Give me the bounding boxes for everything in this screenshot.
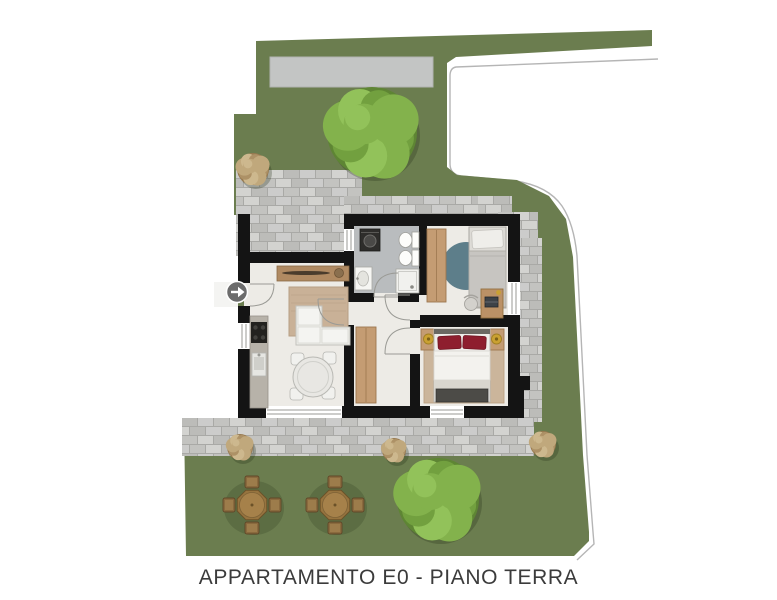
paving-tile <box>494 445 509 453</box>
paving-tile <box>214 454 229 456</box>
bedroom-2 <box>421 329 504 403</box>
paving-tile <box>294 454 309 456</box>
paving-tile <box>530 212 538 220</box>
wall-segment <box>464 406 520 418</box>
paving-tile <box>252 206 267 214</box>
paving-tile <box>538 292 542 300</box>
cooktop <box>251 322 267 343</box>
paving-tile <box>530 373 542 381</box>
wall-segment <box>344 222 354 229</box>
paving-tile <box>502 436 517 444</box>
paving-tile <box>478 445 493 453</box>
paving-tile <box>440 196 455 204</box>
paving-tile <box>326 418 341 426</box>
paving-tile <box>286 445 301 453</box>
patio-chair-seat <box>330 478 340 486</box>
paving-tile <box>316 188 331 196</box>
paving-tile <box>236 188 251 196</box>
paving-tile <box>318 445 333 453</box>
paving-tile <box>326 454 341 456</box>
paving-tile <box>262 418 277 426</box>
paving-tile <box>374 418 389 426</box>
paving-tile <box>284 170 299 178</box>
paving-tile <box>318 427 333 435</box>
window <box>430 406 464 418</box>
paving-tile <box>432 205 447 213</box>
window <box>508 282 520 315</box>
paving-tile <box>510 445 525 453</box>
patio-table-center <box>334 504 337 507</box>
paving-tile <box>522 238 537 246</box>
paving-tile <box>438 436 453 444</box>
paving-tile <box>384 205 399 213</box>
paving-tile <box>462 445 477 453</box>
paving-tile <box>262 436 277 444</box>
paving-tile <box>182 418 197 426</box>
paving-tile <box>430 445 445 453</box>
paving-tile <box>538 238 542 246</box>
paving-tile <box>502 454 517 456</box>
paving-tile <box>522 274 537 282</box>
paving-tile <box>518 454 533 456</box>
pillow <box>463 335 487 349</box>
paving-tile <box>408 196 423 204</box>
paving-tile <box>414 427 429 435</box>
desk <box>481 289 503 318</box>
paving-tile <box>530 319 542 327</box>
paving-tile <box>538 418 542 422</box>
paving-tile <box>316 242 331 250</box>
paving-tile <box>522 346 537 354</box>
paving-tile <box>494 196 509 204</box>
paving-tile <box>430 427 445 435</box>
paving-tile <box>342 454 357 456</box>
paving-tile <box>530 230 538 238</box>
paving-tile <box>300 224 315 232</box>
dining-table <box>290 352 336 400</box>
paving-tile <box>198 418 213 426</box>
paving-tile <box>366 427 381 435</box>
foliage-highlight <box>413 474 436 497</box>
paving-tile <box>538 400 542 408</box>
paving-tile <box>284 224 299 232</box>
paving-tile <box>522 328 537 336</box>
wall-segment <box>410 320 420 328</box>
paving-tile <box>270 445 285 453</box>
paving-tile <box>376 196 391 204</box>
paving-tile <box>324 179 339 187</box>
paving-tile <box>456 196 471 204</box>
paving-tile <box>268 242 283 250</box>
paving-tile <box>470 436 485 444</box>
wall-segment <box>244 252 346 263</box>
paving-tile <box>538 328 542 336</box>
paving-tile <box>348 188 362 196</box>
paving-tile <box>518 418 533 426</box>
paving-tile <box>352 205 367 213</box>
paving-tile <box>308 179 323 187</box>
paving-tile <box>278 454 293 456</box>
paving-tile <box>358 418 373 426</box>
wall-segment <box>238 306 250 323</box>
paving-tile <box>326 436 341 444</box>
paving-tile <box>358 454 373 456</box>
paving-tile <box>254 445 269 453</box>
patio-chair-seat <box>308 500 316 510</box>
patio-chair-seat <box>247 524 257 532</box>
paving-tile <box>522 221 537 229</box>
paving-tile <box>214 418 229 426</box>
paving-tile <box>406 418 421 426</box>
paving-tile <box>358 436 373 444</box>
headboard <box>434 329 490 334</box>
paving-tile <box>206 445 221 453</box>
paving-tile <box>486 418 501 426</box>
paving-tile <box>522 364 537 372</box>
paving-tile <box>270 427 285 435</box>
paving-tile <box>276 215 291 223</box>
paving-tile <box>252 242 267 250</box>
paving-tile <box>530 265 542 273</box>
paving-tile <box>230 418 245 426</box>
paving-tile <box>268 188 283 196</box>
paving-tile <box>392 196 407 204</box>
paving-tile <box>446 427 461 435</box>
paving-tile <box>502 205 512 213</box>
washing-machine <box>360 229 380 251</box>
paving-tile <box>292 233 307 241</box>
washbasin <box>355 267 372 290</box>
paving-tile <box>294 436 309 444</box>
paving-tile <box>454 418 469 426</box>
bed-bench <box>436 389 488 402</box>
foliage-highlight <box>243 159 252 168</box>
paving-tile <box>448 205 463 213</box>
paving-tile <box>310 454 325 456</box>
paving-tile <box>308 215 323 223</box>
paving-tile <box>260 197 275 205</box>
paving-tile <box>316 224 331 232</box>
paving-tile <box>344 205 351 213</box>
paving-tile <box>252 224 267 232</box>
wall-segment <box>344 214 520 226</box>
paving-tile <box>478 205 485 213</box>
paving-tile <box>182 445 189 453</box>
paving-tile <box>464 205 479 213</box>
paving-tile <box>332 188 347 196</box>
paving-tile <box>538 310 542 318</box>
paving-tile <box>254 427 269 435</box>
paving-tile <box>182 427 189 435</box>
toilet <box>399 232 419 248</box>
paving-tile <box>422 454 437 456</box>
paving-tile <box>198 436 213 444</box>
foliage-highlight <box>387 443 394 450</box>
paving-tile <box>494 427 509 435</box>
paving-tile <box>486 205 501 213</box>
paving-tile <box>284 206 299 214</box>
wall-segment <box>342 406 430 418</box>
foliage-highlight <box>535 436 542 443</box>
paving-tile <box>538 256 542 264</box>
window <box>344 229 354 251</box>
bidet <box>399 250 419 266</box>
patio-chair-seat <box>247 478 257 486</box>
sideboard <box>277 266 349 281</box>
pillow <box>438 335 462 349</box>
paving-tile <box>400 205 415 213</box>
wall-segment <box>419 221 427 295</box>
paving-tile <box>510 427 525 435</box>
paving-tile <box>522 292 537 300</box>
paving-tile <box>344 196 359 204</box>
paving-tile <box>414 445 429 453</box>
paving-tile <box>302 427 317 435</box>
paving-tile <box>310 418 325 426</box>
paving-tile <box>324 197 339 205</box>
paving-tile <box>510 196 512 204</box>
paving-tile <box>206 427 221 435</box>
paving-tile <box>530 283 542 291</box>
paving-tile <box>342 436 357 444</box>
plan-caption: APPARTAMENTO E0 - PIANO TERRA <box>0 566 777 590</box>
paving-tile <box>340 179 355 187</box>
paving-tile <box>300 170 315 178</box>
paving-tile <box>182 436 197 444</box>
paving-tile <box>268 206 283 214</box>
paving-tile <box>308 233 323 241</box>
paving-tile <box>530 247 542 255</box>
patio-chair-seat <box>225 500 233 510</box>
paving-tile <box>530 355 542 363</box>
paving-tile <box>342 418 357 426</box>
wall-segment <box>420 315 520 327</box>
wall-segment <box>344 251 354 263</box>
paving-tile <box>502 418 517 426</box>
paving-tile <box>310 436 325 444</box>
paving-tile <box>284 242 299 250</box>
paving-tile <box>292 215 307 223</box>
wall-segment <box>508 376 530 390</box>
foliage-highlight <box>232 439 239 446</box>
paving-tile <box>478 196 493 204</box>
kitchen-counter <box>250 316 268 408</box>
paving-tile <box>222 427 237 435</box>
paving-tile <box>390 418 405 426</box>
paving-tile <box>268 224 283 232</box>
paving-tile <box>538 364 542 372</box>
paving-tile <box>276 197 291 205</box>
paving-tile <box>360 196 375 204</box>
double-bed <box>434 329 490 402</box>
window <box>266 406 342 418</box>
paving-tile <box>538 382 542 390</box>
paving-tile <box>356 179 362 187</box>
paving-tile <box>276 179 291 187</box>
paving-tile <box>522 256 537 264</box>
patio-chair-seat <box>354 500 362 510</box>
floor-plan-page: APPARTAMENTO E0 - PIANO TERRA <box>0 0 777 600</box>
paving-tile <box>522 310 537 318</box>
desk-lamp <box>496 290 501 295</box>
paving-tile <box>530 391 542 399</box>
paving-tile <box>334 445 349 453</box>
patio-chair-seat <box>271 500 279 510</box>
paving-tile <box>368 205 383 213</box>
paving-tile <box>382 427 397 435</box>
paving-tile <box>398 427 413 435</box>
paving-tile <box>236 197 243 205</box>
paving-tile <box>454 436 469 444</box>
paving-tile <box>366 445 381 453</box>
paving-tile <box>292 179 307 187</box>
paving-tile <box>292 197 307 205</box>
patio-table-center <box>251 504 254 507</box>
paving-tile <box>438 418 453 426</box>
paving-tile <box>422 418 437 426</box>
paving-tile <box>300 188 315 196</box>
paving-tile <box>300 206 315 214</box>
wall-segment <box>410 354 420 406</box>
paving-tile <box>262 454 277 456</box>
paving-tile <box>422 436 437 444</box>
paving-tile <box>246 418 261 426</box>
paving-tile <box>276 233 291 241</box>
paving-tile <box>462 427 477 435</box>
paving-tile <box>522 400 537 408</box>
paving-tile <box>252 188 267 196</box>
paving-tile <box>324 233 339 241</box>
paving-tile <box>538 346 542 354</box>
paving-tile <box>286 427 301 435</box>
paving-tile <box>190 445 205 453</box>
paving-tile <box>316 170 331 178</box>
shower <box>396 269 419 293</box>
paving-tile <box>302 445 317 453</box>
paving-tile <box>238 427 253 435</box>
paving-tile <box>278 418 293 426</box>
paving-tile <box>324 215 339 223</box>
paving-tile <box>406 436 421 444</box>
wall-segment <box>508 226 520 282</box>
patio-chair-seat <box>330 524 340 532</box>
paving-tile <box>478 427 493 435</box>
paving-tile <box>294 418 309 426</box>
window <box>238 323 250 349</box>
floor-plan-svg <box>0 0 777 600</box>
paving-tile <box>198 454 213 456</box>
wall-segment <box>238 214 250 258</box>
paving-tile <box>278 436 293 444</box>
paving-tile <box>538 274 542 282</box>
paving-tile <box>454 454 469 456</box>
paving-tile <box>190 427 205 435</box>
paving-tile <box>530 337 542 345</box>
paving-tile <box>260 233 275 241</box>
paving-tile <box>486 436 501 444</box>
paving-tile <box>260 215 275 223</box>
paving-tile <box>470 418 485 426</box>
paving-tile <box>446 445 461 453</box>
paving-tile <box>486 454 501 456</box>
foliage-highlight <box>345 105 370 130</box>
paving-tile <box>316 206 331 214</box>
paving-tile <box>236 206 251 214</box>
paving-tile <box>416 205 431 213</box>
paving-tile <box>334 427 349 435</box>
paving-tile <box>530 409 542 417</box>
paving-tile <box>350 445 365 453</box>
paving-tile <box>332 170 347 178</box>
paving-tile <box>182 454 197 456</box>
paving-tile <box>308 197 323 205</box>
paving-tile <box>530 301 542 309</box>
paving-tile <box>300 242 315 250</box>
driveway <box>270 57 433 87</box>
paving-tile <box>470 454 485 456</box>
paving-tile <box>424 196 439 204</box>
paving-tile <box>350 427 365 435</box>
paving-tile <box>284 188 299 196</box>
paving-tile <box>526 427 534 435</box>
paving-tile <box>438 454 453 456</box>
paving-tile <box>244 197 259 205</box>
